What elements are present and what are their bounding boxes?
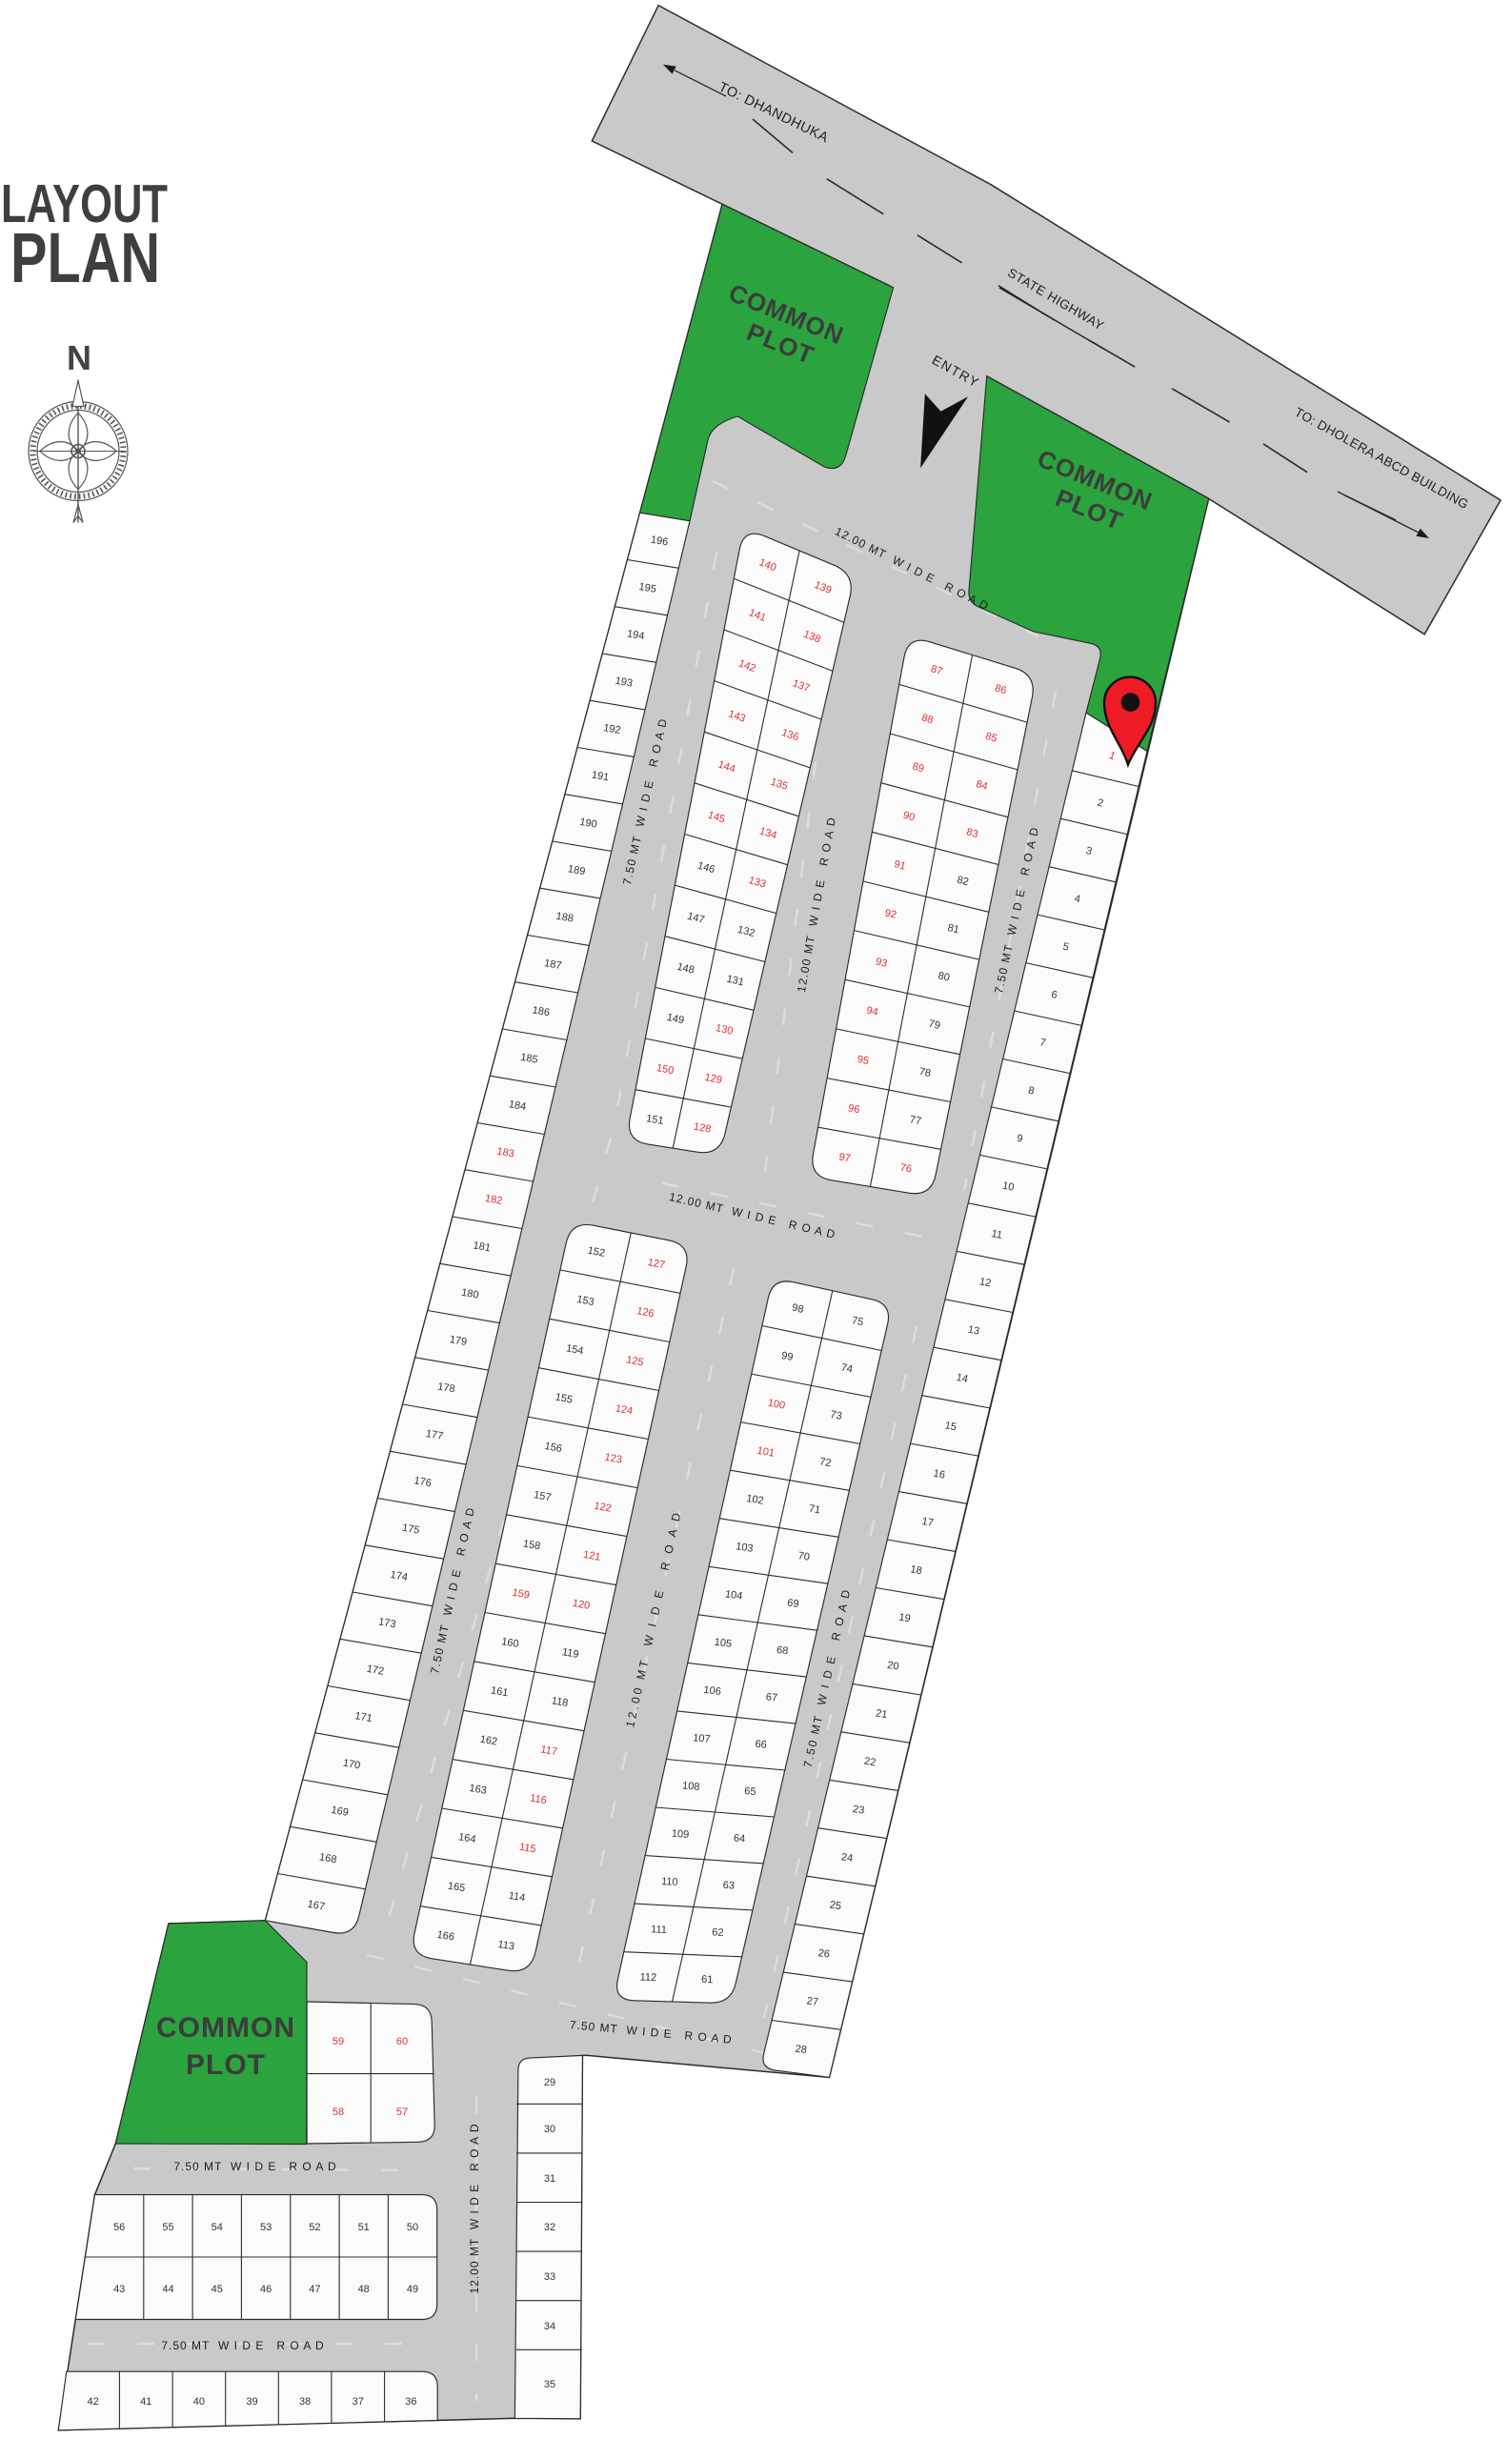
svg-text:12.00 MT W I D E R O A D: 12.00 MT W I D E R O A D xyxy=(468,2123,481,2293)
svg-text:48: 48 xyxy=(358,2284,370,2295)
svg-text:25: 25 xyxy=(829,1900,842,1913)
svg-text:21: 21 xyxy=(875,1707,888,1721)
svg-text:50: 50 xyxy=(407,2222,418,2233)
svg-text:59: 59 xyxy=(333,2036,344,2047)
svg-text:14: 14 xyxy=(956,1372,969,1385)
svg-text:PLOT: PLOT xyxy=(186,2049,266,2081)
svg-text:75: 75 xyxy=(851,1315,864,1328)
svg-text:35: 35 xyxy=(544,2379,555,2390)
svg-text:55: 55 xyxy=(162,2222,173,2233)
svg-text:32: 32 xyxy=(544,2222,555,2233)
svg-text:20: 20 xyxy=(886,1660,899,1673)
svg-text:73: 73 xyxy=(829,1409,842,1422)
svg-text:108: 108 xyxy=(682,1780,700,1793)
svg-text:52: 52 xyxy=(309,2222,320,2233)
svg-text:17: 17 xyxy=(921,1516,935,1529)
svg-text:18: 18 xyxy=(909,1563,922,1577)
svg-text:74: 74 xyxy=(840,1361,854,1375)
svg-text:57: 57 xyxy=(396,2106,408,2118)
svg-text:COMMON: COMMON xyxy=(156,2012,295,2044)
svg-text:22: 22 xyxy=(863,1756,877,1769)
svg-text:40: 40 xyxy=(193,2396,205,2408)
svg-text:60: 60 xyxy=(396,2036,408,2047)
svg-text:54: 54 xyxy=(212,2222,223,2233)
svg-text:69: 69 xyxy=(787,1597,800,1610)
svg-text:98: 98 xyxy=(791,1302,804,1316)
svg-text:67: 67 xyxy=(765,1691,778,1703)
svg-text:28: 28 xyxy=(795,2044,808,2057)
svg-text:38: 38 xyxy=(299,2396,311,2408)
svg-text:43: 43 xyxy=(113,2284,125,2295)
svg-text:51: 51 xyxy=(358,2222,370,2233)
svg-text:112: 112 xyxy=(639,1971,656,1984)
svg-text:42: 42 xyxy=(87,2396,98,2408)
svg-text:53: 53 xyxy=(260,2222,272,2233)
svg-text:19: 19 xyxy=(897,1612,911,1625)
svg-text:26: 26 xyxy=(817,1947,831,1961)
svg-text:27: 27 xyxy=(806,1995,819,2008)
svg-text:76: 76 xyxy=(899,1162,913,1176)
svg-text:61: 61 xyxy=(701,1974,714,1985)
svg-text:49: 49 xyxy=(407,2284,418,2295)
svg-text:41: 41 xyxy=(140,2396,151,2408)
svg-text:15: 15 xyxy=(944,1420,958,1433)
svg-text:31: 31 xyxy=(544,2173,555,2185)
svg-text:33: 33 xyxy=(544,2271,555,2283)
svg-text:107: 107 xyxy=(693,1732,711,1745)
svg-text:10: 10 xyxy=(1001,1180,1015,1194)
svg-text:30: 30 xyxy=(544,2124,555,2135)
svg-text:94: 94 xyxy=(865,1005,878,1018)
svg-text:PLAN: PLAN xyxy=(10,218,160,297)
svg-text:78: 78 xyxy=(918,1066,932,1079)
svg-text:110: 110 xyxy=(661,1876,678,1888)
svg-text:97: 97 xyxy=(838,1151,852,1164)
svg-text:96: 96 xyxy=(847,1102,860,1116)
svg-text:11: 11 xyxy=(990,1228,1003,1241)
svg-text:66: 66 xyxy=(755,1739,767,1751)
svg-text:63: 63 xyxy=(722,1880,735,1892)
svg-text:34: 34 xyxy=(544,2321,555,2332)
svg-text:7.50 MT W I D E R O A D: 7.50 MT W I D E R O A D xyxy=(173,2160,336,2173)
svg-text:29: 29 xyxy=(544,2077,555,2088)
svg-text:56: 56 xyxy=(113,2222,125,2233)
svg-text:N: N xyxy=(67,338,91,377)
svg-text:68: 68 xyxy=(776,1644,789,1657)
svg-text:58: 58 xyxy=(333,2106,344,2118)
svg-text:111: 111 xyxy=(651,1924,667,1936)
svg-text:79: 79 xyxy=(927,1018,940,1032)
svg-text:16: 16 xyxy=(933,1468,946,1482)
svg-text:36: 36 xyxy=(405,2396,416,2408)
svg-text:72: 72 xyxy=(818,1456,832,1469)
svg-text:99: 99 xyxy=(780,1350,794,1363)
svg-text:13: 13 xyxy=(967,1324,980,1338)
svg-text:39: 39 xyxy=(246,2396,257,2408)
svg-text:47: 47 xyxy=(309,2284,320,2295)
svg-text:77: 77 xyxy=(909,1114,922,1127)
svg-text:45: 45 xyxy=(212,2284,223,2295)
svg-text:106: 106 xyxy=(703,1684,722,1698)
svg-text:64: 64 xyxy=(733,1833,745,1845)
svg-text:95: 95 xyxy=(857,1054,870,1067)
svg-text:62: 62 xyxy=(712,1926,724,1939)
svg-text:46: 46 xyxy=(260,2284,272,2295)
svg-text:105: 105 xyxy=(714,1637,733,1650)
svg-text:44: 44 xyxy=(162,2284,173,2295)
svg-text:65: 65 xyxy=(744,1785,756,1798)
svg-text:37: 37 xyxy=(353,2396,364,2408)
svg-text:23: 23 xyxy=(852,1804,865,1817)
svg-text:24: 24 xyxy=(840,1851,854,1865)
svg-text:71: 71 xyxy=(808,1503,821,1517)
svg-text:104: 104 xyxy=(724,1588,743,1602)
svg-text:70: 70 xyxy=(797,1550,811,1563)
svg-text:109: 109 xyxy=(671,1828,689,1841)
svg-text:12: 12 xyxy=(978,1276,992,1289)
svg-text:7.50 MT W I D E R O A D: 7.50 MT W I D E R O A D xyxy=(161,2339,324,2352)
